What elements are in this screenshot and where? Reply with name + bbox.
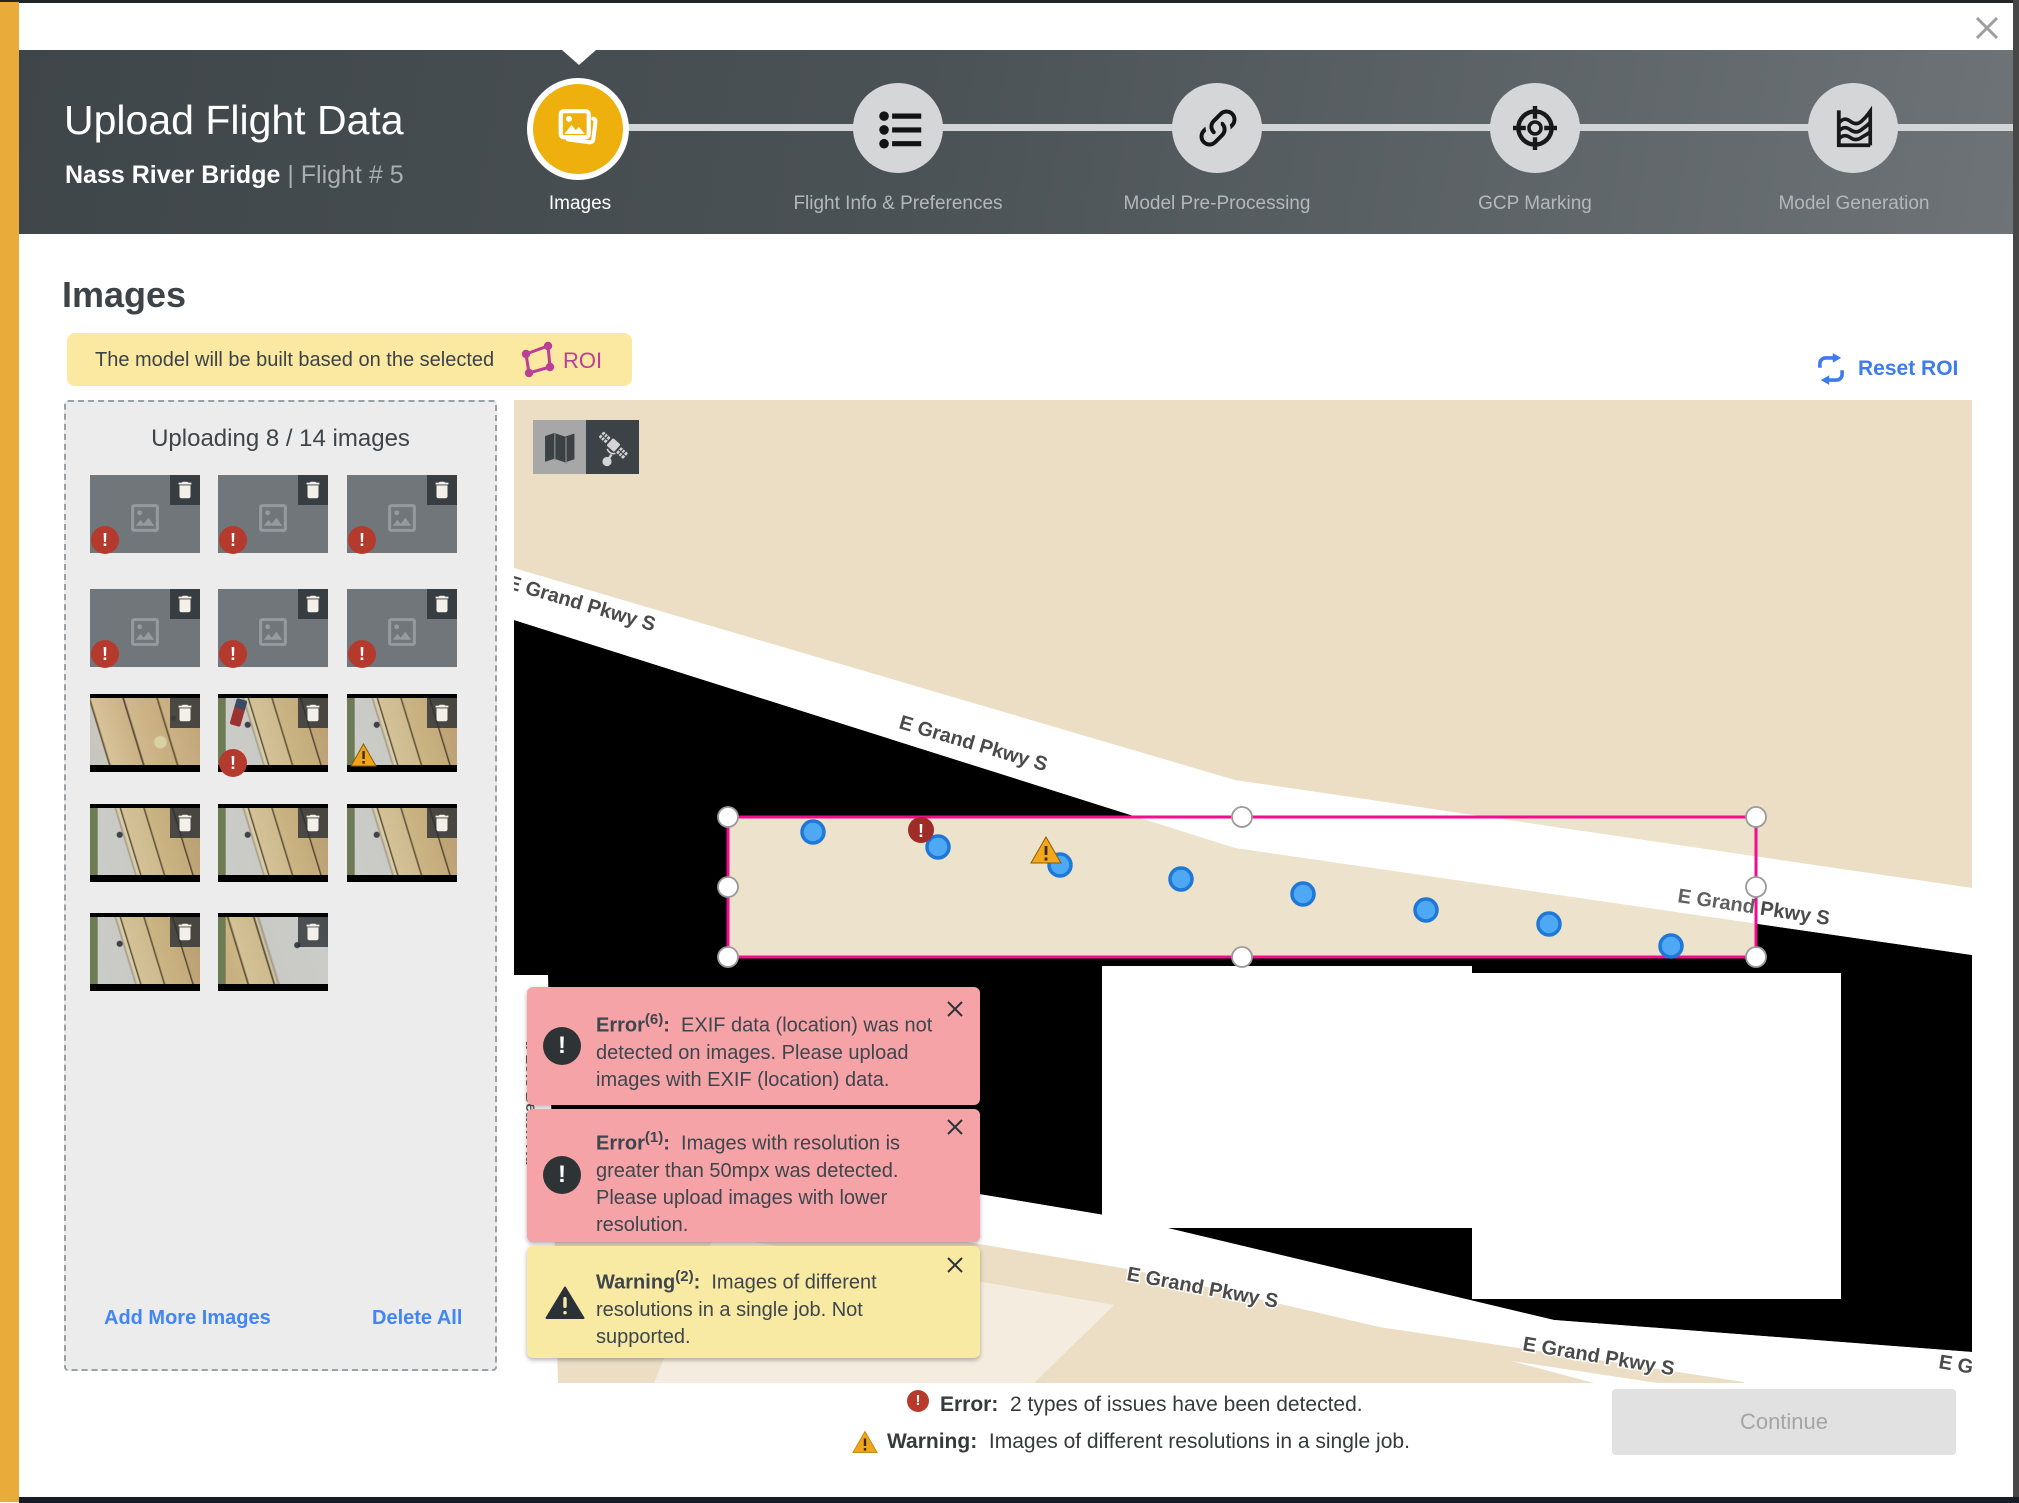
svg-text:!: !: [918, 821, 924, 841]
